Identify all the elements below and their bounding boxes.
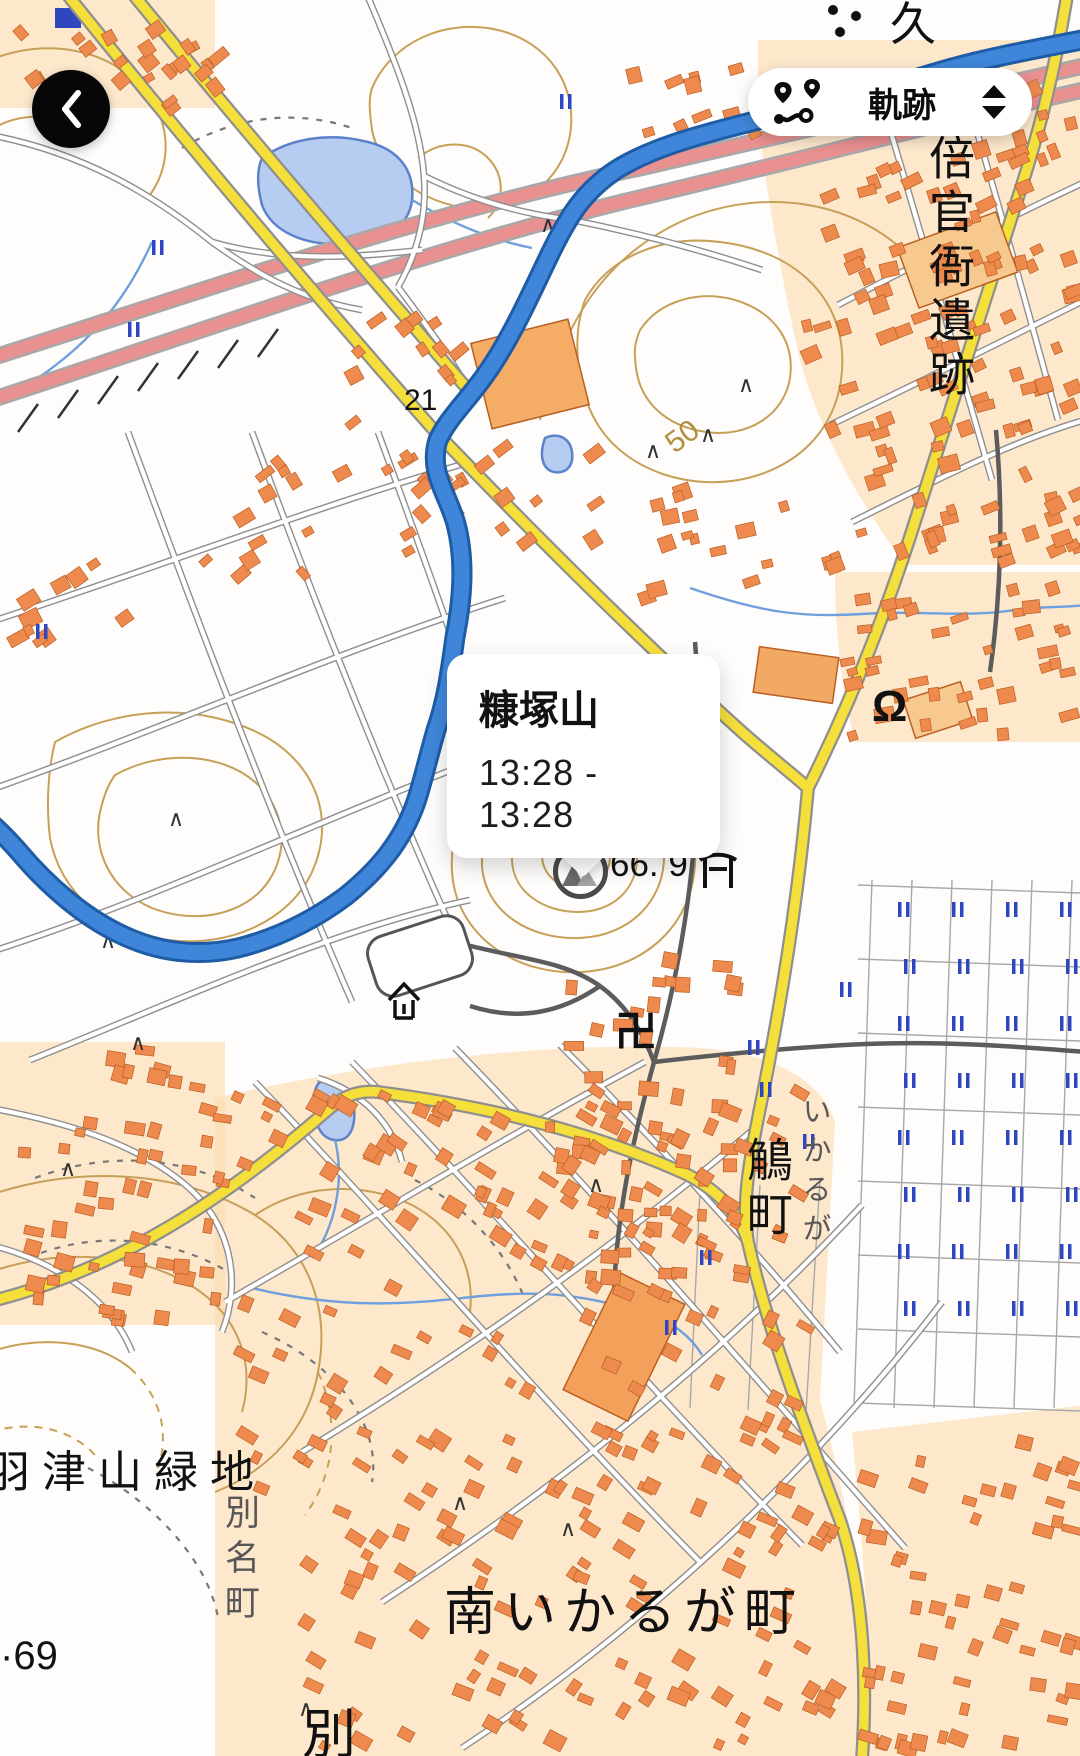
- landmark-callout[interactable]: 糠塚山 13:28 - 13:28: [447, 654, 720, 858]
- callout-title: 糠塚山: [479, 678, 690, 736]
- svg-text:∧: ∧: [60, 1157, 76, 1182]
- svg-text:∧: ∧: [700, 423, 716, 448]
- chevron-left-icon: [58, 88, 84, 130]
- svg-text:∧: ∧: [452, 1491, 468, 1516]
- up-down-triangles-icon: [980, 83, 1008, 121]
- svg-text:∧: ∧: [560, 1517, 576, 1542]
- svg-text:∧: ∧: [645, 439, 661, 464]
- svg-text:∧: ∧: [588, 1173, 604, 1198]
- callout-time-range: 13:28 - 13:28: [479, 752, 690, 836]
- svg-text:∧: ∧: [168, 807, 184, 832]
- route-icon: [772, 79, 824, 125]
- topo-map[interactable]: ∧∧∧∧∧∧∧∧∧∧∧∧∧∧: [0, 0, 1080, 1756]
- svg-text:∧: ∧: [298, 1697, 314, 1722]
- back-button[interactable]: [32, 70, 110, 148]
- svg-text:∧: ∧: [130, 1031, 146, 1056]
- map-screen: ∧∧∧∧∧∧∧∧∧∧∧∧∧∧ 21 50 倍官衙遺跡 鵤町 いかるが 羽津山緑地…: [0, 0, 1080, 1756]
- svg-text:∧: ∧: [738, 373, 754, 398]
- track-selector[interactable]: 軌跡: [748, 68, 1032, 136]
- callout-body: 糠塚山 13:28 - 13:28: [447, 654, 720, 858]
- track-selector-label: 軌跡: [842, 78, 962, 127]
